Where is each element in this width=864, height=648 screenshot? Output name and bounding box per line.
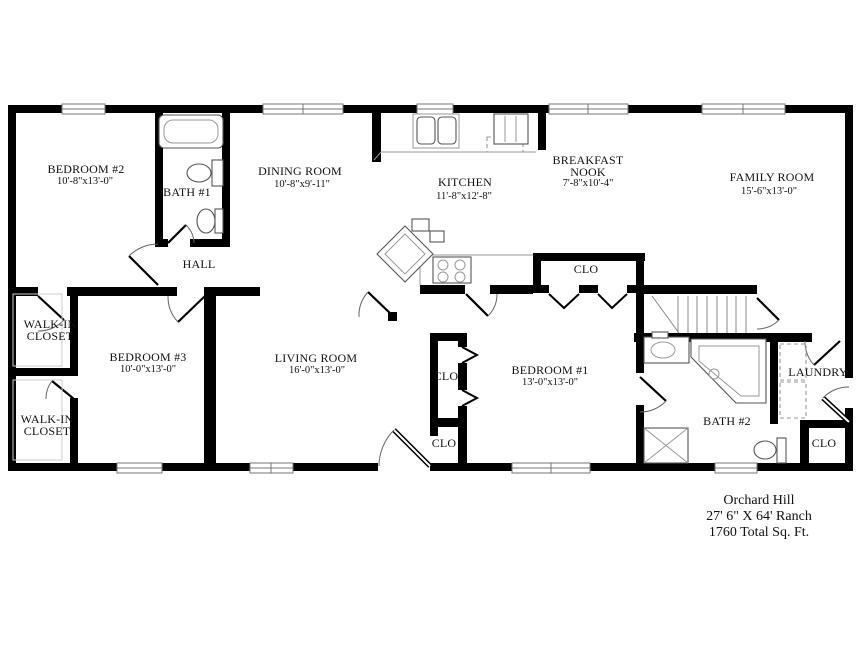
walkin-closet2-label: WALK-IN CLOSET (21, 413, 74, 437)
plan-title: Orchard Hill (706, 493, 812, 509)
toilet-icon (197, 209, 223, 233)
refrigerator-icon (494, 114, 528, 144)
title-block: Orchard Hill 27' 6" X 64' Ranch 1760 Tot… (706, 493, 812, 541)
bath1-fixtures (159, 115, 223, 233)
bedroom2-dims: 10'-8"x13'-0" (57, 176, 113, 188)
walkin1-line2: CLOSET (24, 330, 77, 342)
sink-icon (187, 160, 223, 186)
front-entry-door (379, 430, 430, 466)
window (263, 104, 343, 114)
walkin2-door (46, 381, 74, 399)
laundry-exterior-door (823, 387, 849, 422)
counter-edge (374, 152, 536, 160)
bedroom3-dims: 10'-0"x13'-0" (120, 364, 176, 376)
dining-dims: 10'-8"x9'-11" (274, 179, 330, 191)
closet-label-bedroom1-top: CLO (574, 263, 599, 275)
walkin2-line2: CLOSET (21, 425, 74, 437)
bathtub-icon (159, 115, 223, 148)
bedroom2-label: BEDROOM #2 (47, 163, 124, 175)
bath1-label: BATH #1 (163, 186, 211, 198)
dryer-icon (780, 382, 806, 418)
breakfast-nook-label: BREAKFAST NOOK 7'-8"x10'-4" (553, 154, 624, 190)
bath2-fixtures (644, 332, 786, 463)
kitchen-sink-icon (413, 114, 459, 148)
laundry-label: LAUNDRY (788, 366, 847, 378)
stairs-door (757, 298, 779, 329)
family-room-dims: 15'-6"x13'-0" (741, 186, 797, 198)
window (715, 463, 757, 473)
kitchen-label: KITCHEN (438, 176, 492, 188)
walkin-closet1-label: WALK-IN CLOSET (24, 318, 77, 342)
window (117, 463, 162, 473)
hall-label: HALL (183, 258, 216, 270)
window (62, 104, 105, 114)
plan-sqft: 1760 Total Sq. Ft. (706, 525, 812, 541)
bedroom1-closet-bifold-doors (462, 294, 627, 406)
shower-icon (644, 428, 688, 463)
laundry-fixtures (780, 344, 806, 418)
closet-label-laundry: CLO (812, 437, 837, 449)
floor-plan-drawing (0, 0, 864, 648)
closet-label-bedroom1-side: CLO (434, 370, 459, 382)
plan-size: 27' 6" X 64' Ranch (706, 509, 812, 525)
bath2-label: BATH #2 (703, 415, 751, 427)
staircase (652, 296, 746, 333)
bedroom2-door (129, 244, 158, 285)
window (549, 104, 628, 114)
toilet-icon (754, 438, 786, 463)
interior-walls (8, 112, 852, 463)
window (702, 104, 785, 114)
kitchen-dims: 11'-8"x12'-8" (436, 191, 492, 203)
bedroom3-door (168, 296, 205, 322)
living-room-dims: 16'-0"x13'-0" (289, 365, 345, 377)
breakfast-nook-line2: NOOK (553, 166, 624, 178)
laundry-door (805, 341, 840, 365)
closet-label-entry: CLO (432, 437, 457, 449)
window (417, 104, 453, 114)
window (512, 463, 590, 473)
window (250, 463, 293, 473)
bedroom1-dims: 13'-0"x13'-0" (522, 377, 578, 389)
family-room-label: FAMILY ROOM (730, 171, 815, 183)
living-room-label: LIVING ROOM (275, 352, 358, 364)
corner-tub-icon (691, 339, 766, 403)
bedroom3-label: BEDROOM #3 (109, 351, 186, 363)
stove-icon (433, 257, 471, 283)
vanity-sink-icon (644, 332, 689, 363)
breakfast-nook-dims: 7'-8"x10'-4" (553, 178, 624, 190)
bedroom1-label: BEDROOM #1 (511, 364, 588, 376)
bedroom1-door (466, 294, 497, 316)
living-room-door (359, 292, 393, 317)
dining-label: DINING ROOM (258, 165, 342, 177)
floor-plan-page: BEDROOM #2 10'-8"x13'-0" BATH #1 DINING … (0, 0, 864, 648)
